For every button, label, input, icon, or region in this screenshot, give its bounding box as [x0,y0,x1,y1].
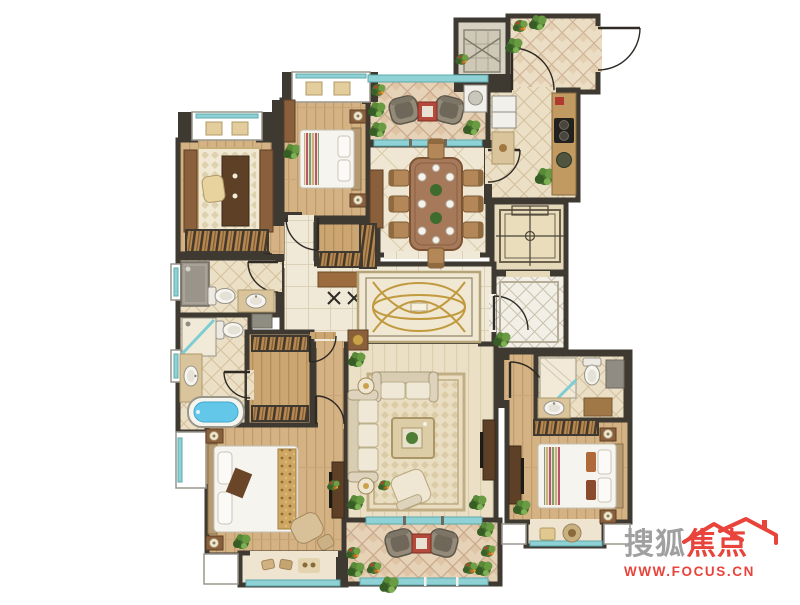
shower-mat [606,360,624,388]
bedroom-2-bay-window [282,72,378,102]
kitchen-sink [557,153,572,168]
wardrobe-2 [284,100,295,142]
bath-mat [584,398,612,416]
lamp-icon [210,539,219,548]
sink-icon [544,401,564,415]
toilet-icon [208,287,235,305]
lamp-icon [210,432,219,441]
study-closet [186,230,268,252]
shower [181,262,209,306]
study-chair [201,175,225,204]
wardrobe-3 [534,420,598,435]
master-bay-window [176,432,206,488]
side-table [358,478,374,494]
tv-icon [480,432,483,468]
wardrobe [252,406,308,421]
view-balcony-glazing [360,577,488,586]
coffee-table [392,418,434,458]
watermark-brand-gray: 搜狐 [624,528,686,561]
toilet-icon [583,358,601,385]
kitchen-counter-right [552,93,576,195]
bookshelf-right [260,150,273,232]
master-bed [208,444,298,534]
study-desk [222,156,249,226]
lamp-icon [354,196,363,205]
elevator-1 [464,30,500,72]
sohu-focus-watermark: 搜狐焦点 WWW.FOCUS.CN [624,528,784,579]
floor-plan-canvas [0,0,800,600]
bathtub [188,397,244,427]
sofa-top [372,372,438,402]
fridge [492,96,516,128]
shower-3 [540,358,576,398]
balcony-table [418,102,437,121]
tv-icon [521,458,524,494]
lamp-icon [604,512,613,521]
floor-plan-image: 搜狐焦点 WWW.FOCUS.CN [0,0,800,600]
lamp-icon [354,112,363,121]
lamp-icon [604,430,613,439]
bath-cabinet [252,314,272,328]
elevator-2 [496,206,564,266]
bookshelf-left [184,150,197,232]
sofa-left [348,390,378,482]
dining-table [410,158,462,250]
sink-icon [246,294,266,308]
dining-chair [428,139,444,159]
dining-chair [463,222,483,238]
study-bay-window [178,112,274,142]
balcony-table [412,534,431,553]
dining-chair [463,170,483,186]
laundry-balcony-glazing [368,75,488,82]
bed-3 [538,444,623,508]
bed-2 [300,128,361,190]
watermark-url: WWW.FOCUS.CN [624,564,784,579]
washing-machine [464,85,487,112]
entry-door [598,28,640,70]
watermark-brand: 搜狐焦点 [624,528,784,562]
side-table [358,378,374,394]
dining-chair [389,222,409,238]
toilet-icon [216,321,243,339]
master-balcony-pillar [204,554,238,584]
tv-console [483,420,495,480]
dining-chair [428,248,444,268]
study [184,148,273,252]
dresser-3 [509,446,521,504]
sideboard [370,170,383,228]
hall-side-table [348,330,368,350]
sink-icon [184,366,198,386]
dining-chair [463,196,483,212]
hall-wardrobe [318,252,362,267]
wardrobe [252,336,308,351]
guest-bath-window [171,264,181,300]
corner-shower [182,318,216,356]
master-balcony-glazing [246,580,340,586]
hall-rug [358,272,480,342]
dining-chair [389,170,409,186]
watermark-brand-red: 焦点 [686,528,748,561]
dining-chair [389,196,409,212]
living-balcony-door-glass [366,516,482,525]
